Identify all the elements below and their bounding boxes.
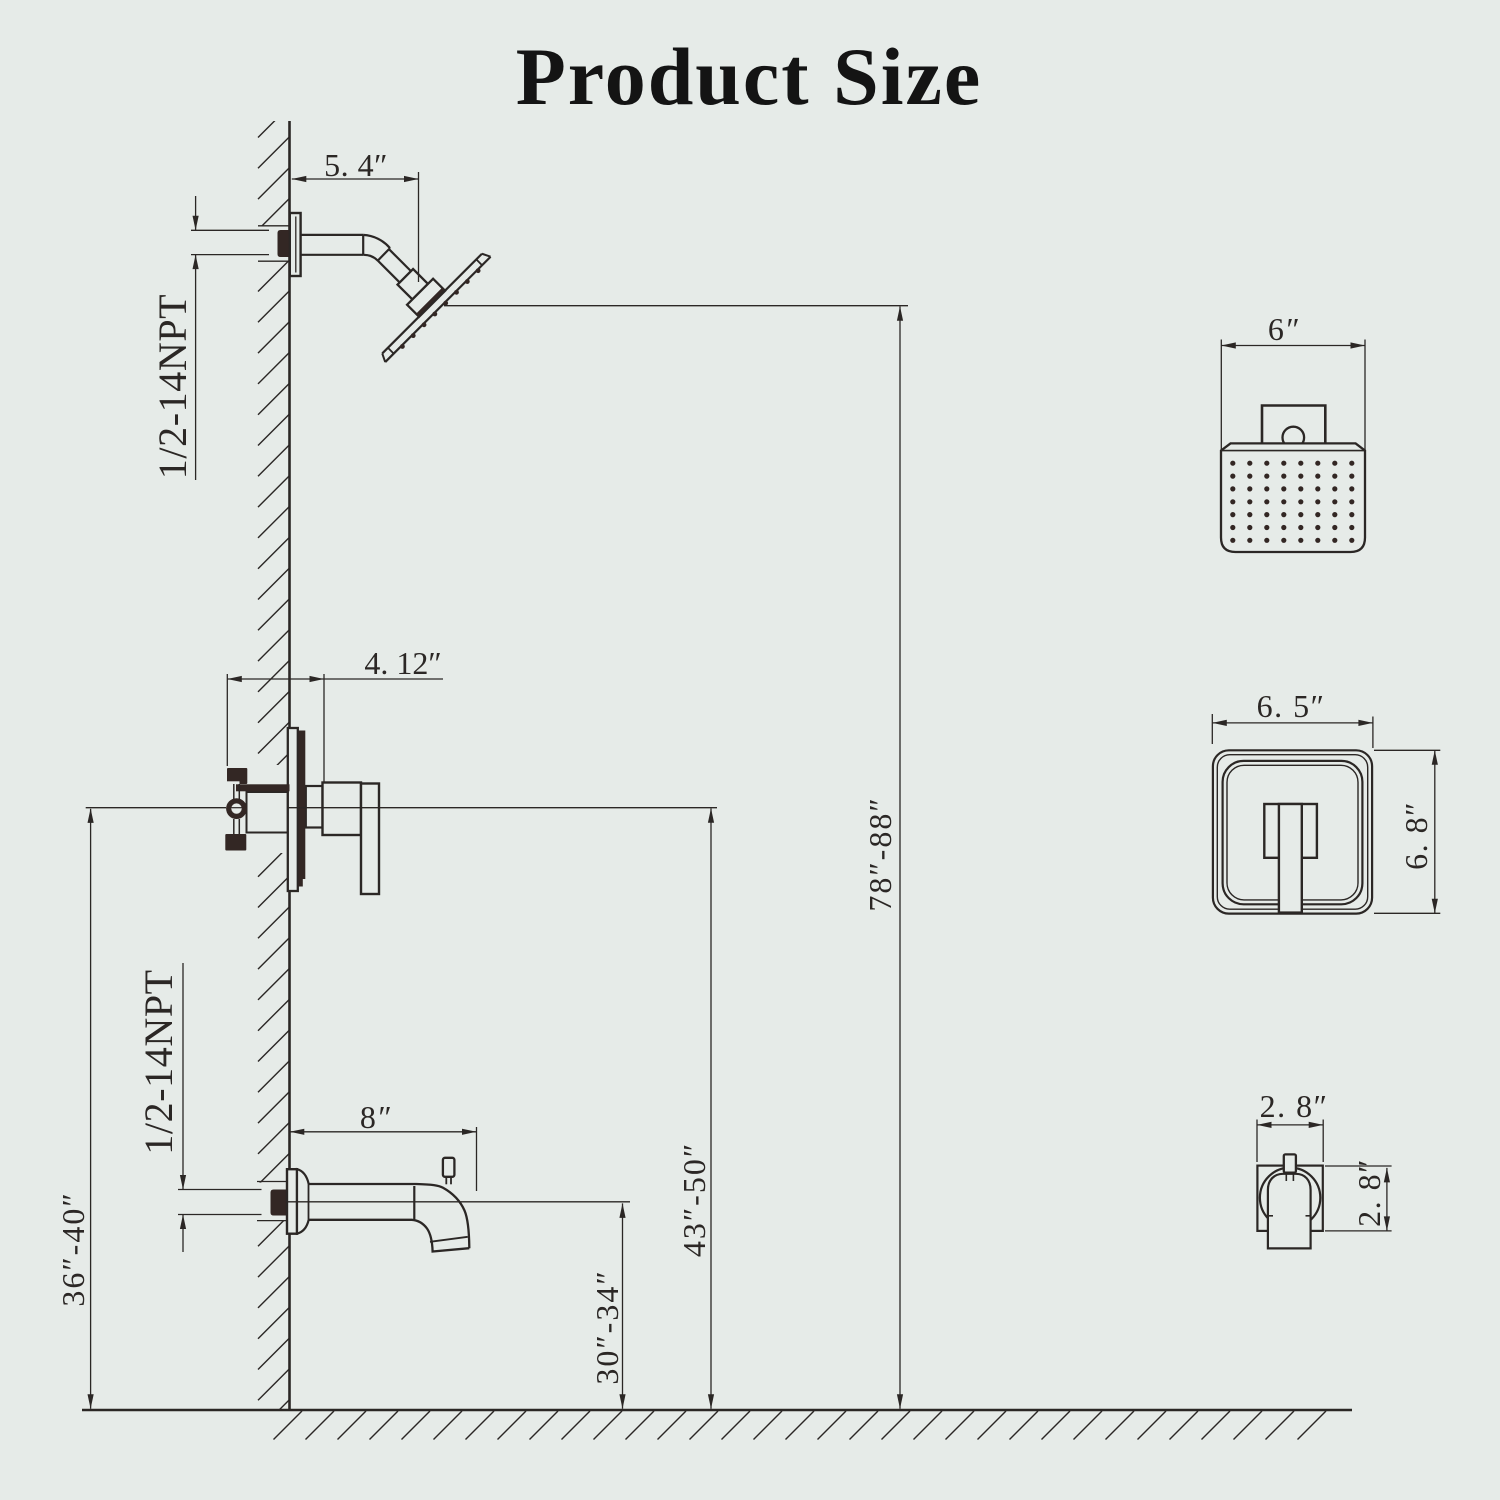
svg-text:8″: 8″ — [360, 1099, 394, 1135]
svg-text:30″-34″: 30″-34″ — [589, 1269, 625, 1384]
svg-text:43″-50″: 43″-50″ — [676, 1142, 712, 1257]
svg-text:1/2-14NPT: 1/2-14NPT — [136, 969, 181, 1154]
svg-text:6. 8″: 6. 8″ — [1398, 801, 1434, 870]
svg-text:4. 12″: 4. 12″ — [364, 645, 441, 681]
svg-text:2. 8″: 2. 8″ — [1351, 1158, 1387, 1227]
svg-text:78″-88″: 78″-88″ — [862, 796, 898, 911]
svg-text:1/2-14NPT: 1/2-14NPT — [150, 294, 195, 479]
svg-text:36″-40″: 36″-40″ — [55, 1191, 91, 1306]
svg-text:Product Size: Product Size — [516, 31, 983, 122]
svg-text:5. 4″: 5. 4″ — [324, 147, 388, 183]
svg-text:6. 5″: 6. 5″ — [1257, 688, 1326, 724]
svg-text:6″: 6″ — [1268, 311, 1302, 347]
svg-text:2. 8″: 2. 8″ — [1260, 1088, 1329, 1124]
